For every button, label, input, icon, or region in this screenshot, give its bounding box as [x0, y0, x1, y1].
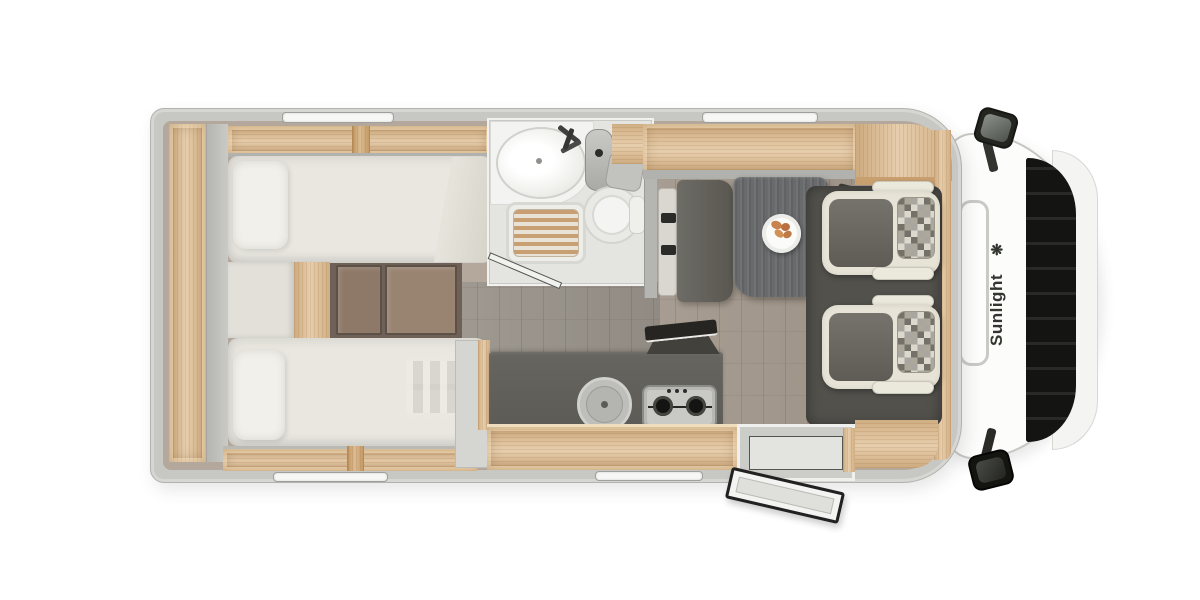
bedroom-inner-wall	[206, 124, 228, 462]
bed-front-shelf-divider	[347, 446, 364, 471]
window-top-right	[702, 112, 818, 123]
seat2-armrest-bottom	[872, 381, 934, 394]
motorhome-floorplan: ❋ Sunlight	[0, 0, 1200, 600]
bed-step-1	[336, 265, 382, 335]
window-bottom-center	[595, 471, 703, 481]
rear-wardrobe-shelf	[169, 124, 206, 462]
sink-lid-knob	[601, 401, 608, 408]
shower-teak-grate	[513, 209, 579, 257]
toilet-lid-hinge	[629, 196, 645, 234]
kitchen-cabinet-front	[487, 424, 737, 470]
bench-backrest	[658, 188, 677, 296]
entry-wood-edge	[843, 428, 855, 472]
hob-burner-right	[686, 396, 706, 416]
overhead-cabinet-dinette	[643, 124, 857, 174]
front-grille	[1026, 158, 1076, 442]
hob-burner-left	[653, 396, 673, 416]
bed-side-panel	[228, 262, 294, 338]
shelf-divider-top	[352, 126, 370, 155]
seat1-cushion-panel	[829, 199, 893, 267]
window-top-left	[282, 112, 394, 123]
hob-knob-2	[675, 389, 679, 393]
cab-roof-hatch	[959, 200, 989, 366]
hob-knob-1	[667, 389, 671, 393]
seatbelt-buckle-2	[661, 245, 676, 255]
door-side-cabinet	[855, 420, 938, 468]
pillow-bottom-bed	[233, 350, 285, 440]
brand-decal: Sunlight	[986, 255, 1008, 365]
mirror-glass-top	[979, 113, 1013, 144]
seat1-armrest-bottom	[872, 267, 934, 280]
window-bottom-left	[273, 472, 388, 482]
seat2-cushion-panel	[829, 313, 893, 381]
pillow-top-bed	[233, 161, 288, 249]
hob-knob-3	[683, 389, 687, 393]
bench-seat	[677, 180, 733, 302]
mirror-glass-bottom	[975, 456, 1007, 484]
bed-divider-cabinet	[294, 262, 330, 338]
seatbelt-buckle-1	[661, 213, 676, 223]
bed-step-2	[385, 265, 457, 335]
entry-step-core	[749, 436, 843, 470]
seat2-checker-backrest	[897, 311, 935, 373]
seat1-checker-backrest	[897, 197, 935, 259]
vanity-knob	[595, 149, 603, 157]
basin-drain	[536, 158, 542, 164]
